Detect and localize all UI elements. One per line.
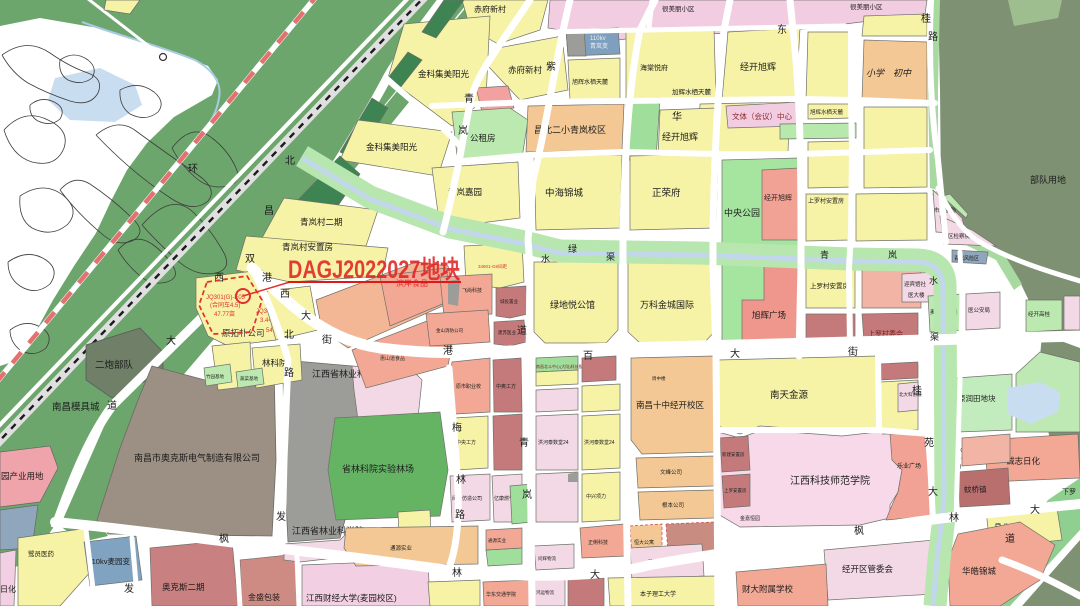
svg-text:西: 西	[280, 289, 290, 300]
svg-text:水: 水	[929, 275, 938, 286]
svg-text:南天金源: 南天金源	[770, 389, 809, 401]
svg-text:DAGJ2022027地块: DAGJ2022027地块	[288, 256, 460, 284]
svg-text:东: 东	[777, 23, 787, 36]
svg-text:道: 道	[1005, 532, 1015, 545]
svg-text:环: 环	[188, 164, 198, 175]
svg-text:金山消防公司: 金山消防公司	[436, 327, 463, 334]
svg-text:南昌十中经开校区: 南昌十中经开校区	[636, 400, 705, 410]
svg-text:小学 初中: 小学 初中	[866, 68, 912, 78]
svg-text:大: 大	[928, 485, 938, 498]
svg-text:34601-G8间距: 34601-G8间距	[478, 263, 508, 270]
svg-text:大: 大	[166, 334, 176, 347]
svg-text:城投置业: 城投置业	[500, 298, 518, 305]
svg-text:洪河泰数堂24: 洪河泰数堂24	[584, 439, 615, 446]
svg-text:加辉水栖天麓: 加辉水栖天麓	[672, 87, 712, 96]
svg-text:林: 林	[949, 511, 959, 524]
svg-text:本子理工大学: 本子理工大学	[640, 590, 676, 598]
svg-text:经开旭辉: 经开旭辉	[662, 131, 698, 142]
svg-text:恒大公寓: 恒大公寓	[634, 539, 654, 546]
svg-text:110kv: 110kv	[590, 36, 606, 42]
svg-text:根本公司: 根本公司	[662, 501, 684, 509]
svg-text:原市职业校: 原市职业校	[456, 383, 481, 390]
svg-text:通源实业: 通源实业	[390, 544, 413, 552]
svg-text:旭辉水栖天麓: 旭辉水栖天麓	[572, 78, 608, 86]
svg-text:很美丽小区: 很美丽小区	[662, 4, 695, 13]
svg-text:街: 街	[322, 333, 332, 346]
svg-text:华皓锦城: 华皓锦城	[962, 566, 997, 576]
svg-text:林科院: 林科院	[262, 358, 288, 368]
svg-text:新建安置房: 新建安置房	[722, 451, 745, 458]
svg-text:渠: 渠	[606, 251, 615, 262]
svg-text:港: 港	[443, 345, 453, 357]
svg-text:部队用地: 部队用地	[1030, 174, 1066, 185]
svg-text:岚: 岚	[522, 489, 532, 501]
svg-text:文体（会议）中心: 文体（会议）中心	[732, 111, 792, 121]
svg-text:财大附属学校: 财大附属学校	[742, 584, 794, 594]
svg-text:华: 华	[672, 110, 682, 123]
svg-text:青岚村二期: 青岚村二期	[300, 217, 343, 227]
svg-text:发: 发	[124, 582, 134, 595]
svg-text:(合同车4.5): (合同车4.5)	[210, 301, 240, 309]
svg-text:港: 港	[262, 272, 272, 284]
svg-text:西: 西	[214, 273, 224, 284]
svg-text:华东交通学院: 华东交通学院	[486, 591, 516, 598]
svg-text:赤府新村: 赤府新村	[508, 65, 543, 75]
svg-text:110kv麦园变: 110kv麦园变	[88, 556, 130, 566]
svg-text:周中楼: 周中楼	[652, 375, 666, 382]
svg-text:绿地悦公馆: 绿地悦公馆	[550, 299, 595, 310]
svg-text:万科金城国际: 万科金城国际	[640, 299, 694, 310]
svg-text:很美丽小区: 很美丽小区	[850, 2, 883, 11]
svg-text:鹭员医药: 鹭员医药	[28, 549, 55, 558]
svg-text:竹园基地: 竹园基地	[206, 373, 224, 380]
svg-text:原润田地块: 原润田地块	[958, 393, 996, 403]
svg-text:二炮部队: 二炮部队	[95, 359, 134, 371]
svg-text:蔬菜基地: 蔬菜基地	[240, 375, 258, 382]
svg-text:枫: 枫	[854, 524, 864, 537]
svg-text:大: 大	[1030, 503, 1040, 516]
svg-text:道: 道	[107, 399, 117, 412]
svg-text:江西科技师范学院: 江西科技师范学院	[790, 474, 870, 487]
svg-text:上罗安置房: 上罗安置房	[724, 487, 747, 494]
svg-text:医公安局: 医公安局	[968, 306, 990, 314]
svg-text:路: 路	[928, 30, 938, 43]
svg-text:上罗村安置房: 上罗村安置房	[808, 197, 844, 205]
svg-text:金科集美阳光: 金科集美阳光	[366, 142, 418, 152]
svg-text:苑: 苑	[924, 436, 934, 449]
svg-text:青: 青	[519, 436, 529, 449]
svg-text:大: 大	[301, 309, 311, 322]
svg-text:南昌模具城: 南昌模具城	[52, 401, 100, 413]
svg-text:正俐科技: 正俐科技	[588, 539, 608, 546]
svg-text:青: 青	[820, 249, 829, 260]
svg-text:乐业广场: 乐业广场	[897, 462, 921, 470]
svg-text:林: 林	[456, 473, 466, 486]
svg-text:中央公园: 中央公园	[724, 207, 760, 218]
svg-text:桂: 桂	[912, 384, 922, 397]
svg-text:水: 水	[541, 253, 550, 264]
svg-text:大: 大	[590, 568, 600, 581]
svg-text:旭辉广场: 旭辉广场	[752, 310, 786, 320]
svg-text:问辉物流: 问辉物流	[538, 555, 556, 562]
svg-text:公租房: 公租房	[470, 133, 496, 143]
svg-text:蚊桥镇: 蚊桥镇	[964, 484, 987, 494]
svg-text:文峰公司: 文峰公司	[660, 468, 682, 476]
svg-text:双: 双	[245, 253, 255, 265]
svg-text:岚: 岚	[458, 125, 468, 137]
svg-text:中央工方: 中央工方	[456, 439, 476, 446]
svg-text:大: 大	[730, 347, 740, 360]
svg-text:经开区管委会: 经开区管委会	[842, 564, 894, 574]
svg-text:下罗: 下罗	[1062, 488, 1076, 496]
svg-text:路: 路	[455, 508, 465, 521]
svg-text:桂: 桂	[921, 12, 931, 25]
svg-text:上罗村安置房: 上罗村安置房	[810, 281, 849, 290]
svg-text:绿: 绿	[568, 243, 577, 254]
svg-text:鸿运物流: 鸿运物流	[536, 589, 554, 596]
svg-text:日化: 日化	[0, 584, 16, 594]
svg-text:惠山道食品: 惠山道食品	[380, 355, 405, 362]
svg-text:发: 发	[276, 510, 286, 523]
svg-text:中奥工方: 中奥工方	[496, 383, 516, 390]
svg-text:青岚村安置房: 青岚村安置房	[282, 242, 333, 252]
svg-text:梅: 梅	[452, 421, 462, 434]
svg-text:建苏医业: 建苏医业	[498, 329, 516, 336]
svg-text:街: 街	[848, 345, 858, 358]
svg-text:北: 北	[284, 329, 294, 341]
svg-text:赤府新村: 赤府新村	[474, 4, 506, 14]
svg-text:诚志日化: 诚志日化	[1006, 456, 1041, 466]
svg-text:原拓朴公司: 原拓朴公司	[222, 328, 265, 338]
svg-text:金科集美阳光: 金科集美阳光	[418, 69, 470, 79]
svg-text:飞尚科技: 飞尚科技	[462, 287, 482, 294]
svg-text:金嘉恒园: 金嘉恒园	[740, 515, 760, 522]
svg-text:通源实业: 通源实业	[488, 537, 506, 544]
svg-text:经开旭辉: 经开旭辉	[764, 193, 792, 202]
svg-text:青: 青	[464, 92, 474, 105]
svg-text:正荣府: 正荣府	[652, 187, 681, 199]
svg-text:JQ301(G)-E05: JQ301(G)-E05	[206, 295, 246, 301]
svg-text:渠: 渠	[930, 331, 939, 342]
svg-text:奥克斯二期: 奥克斯二期	[162, 582, 205, 592]
svg-text:道: 道	[517, 324, 527, 337]
svg-text:岚: 岚	[888, 250, 897, 260]
svg-text:经开高桂: 经开高桂	[1028, 310, 1051, 318]
svg-text:中兴项力: 中兴项力	[586, 493, 606, 500]
svg-text:洪河泰数堂24: 洪河泰数堂24	[538, 439, 569, 446]
svg-text:江西财经大学(麦园校区): 江西财经大学(麦园校区)	[306, 593, 397, 603]
svg-text:园产业用地: 园产业用地	[1, 471, 44, 481]
svg-text:海棠悦府: 海棠悦府	[640, 63, 668, 72]
svg-text:北: 北	[285, 155, 295, 167]
svg-text:金盛包装: 金盛包装	[248, 592, 280, 602]
svg-text:经开旭辉: 经开旭辉	[740, 61, 776, 72]
svg-text:中海锦城: 中海锦城	[545, 187, 584, 199]
svg-text:省林科院实验林场: 省林科院实验林场	[342, 463, 414, 474]
svg-text:47.77亩: 47.77亩	[214, 310, 235, 318]
svg-text:枫: 枫	[219, 532, 229, 545]
svg-text:青岚变: 青岚变	[590, 42, 608, 50]
svg-text:百: 百	[583, 350, 593, 362]
svg-text:紫: 紫	[546, 61, 556, 73]
svg-text:医大楼: 医大楼	[908, 291, 925, 299]
svg-text:旭辉水栖天麓: 旭辉水栖天麓	[810, 108, 844, 116]
svg-text:迎宾馆社: 迎宾馆社	[904, 280, 927, 288]
svg-text:路: 路	[284, 366, 294, 379]
svg-text:南昌市奥克斯电气制造有限公司: 南昌市奥克斯电气制造有限公司	[134, 452, 260, 463]
svg-text:林: 林	[452, 566, 462, 579]
svg-text:昌: 昌	[264, 205, 274, 217]
